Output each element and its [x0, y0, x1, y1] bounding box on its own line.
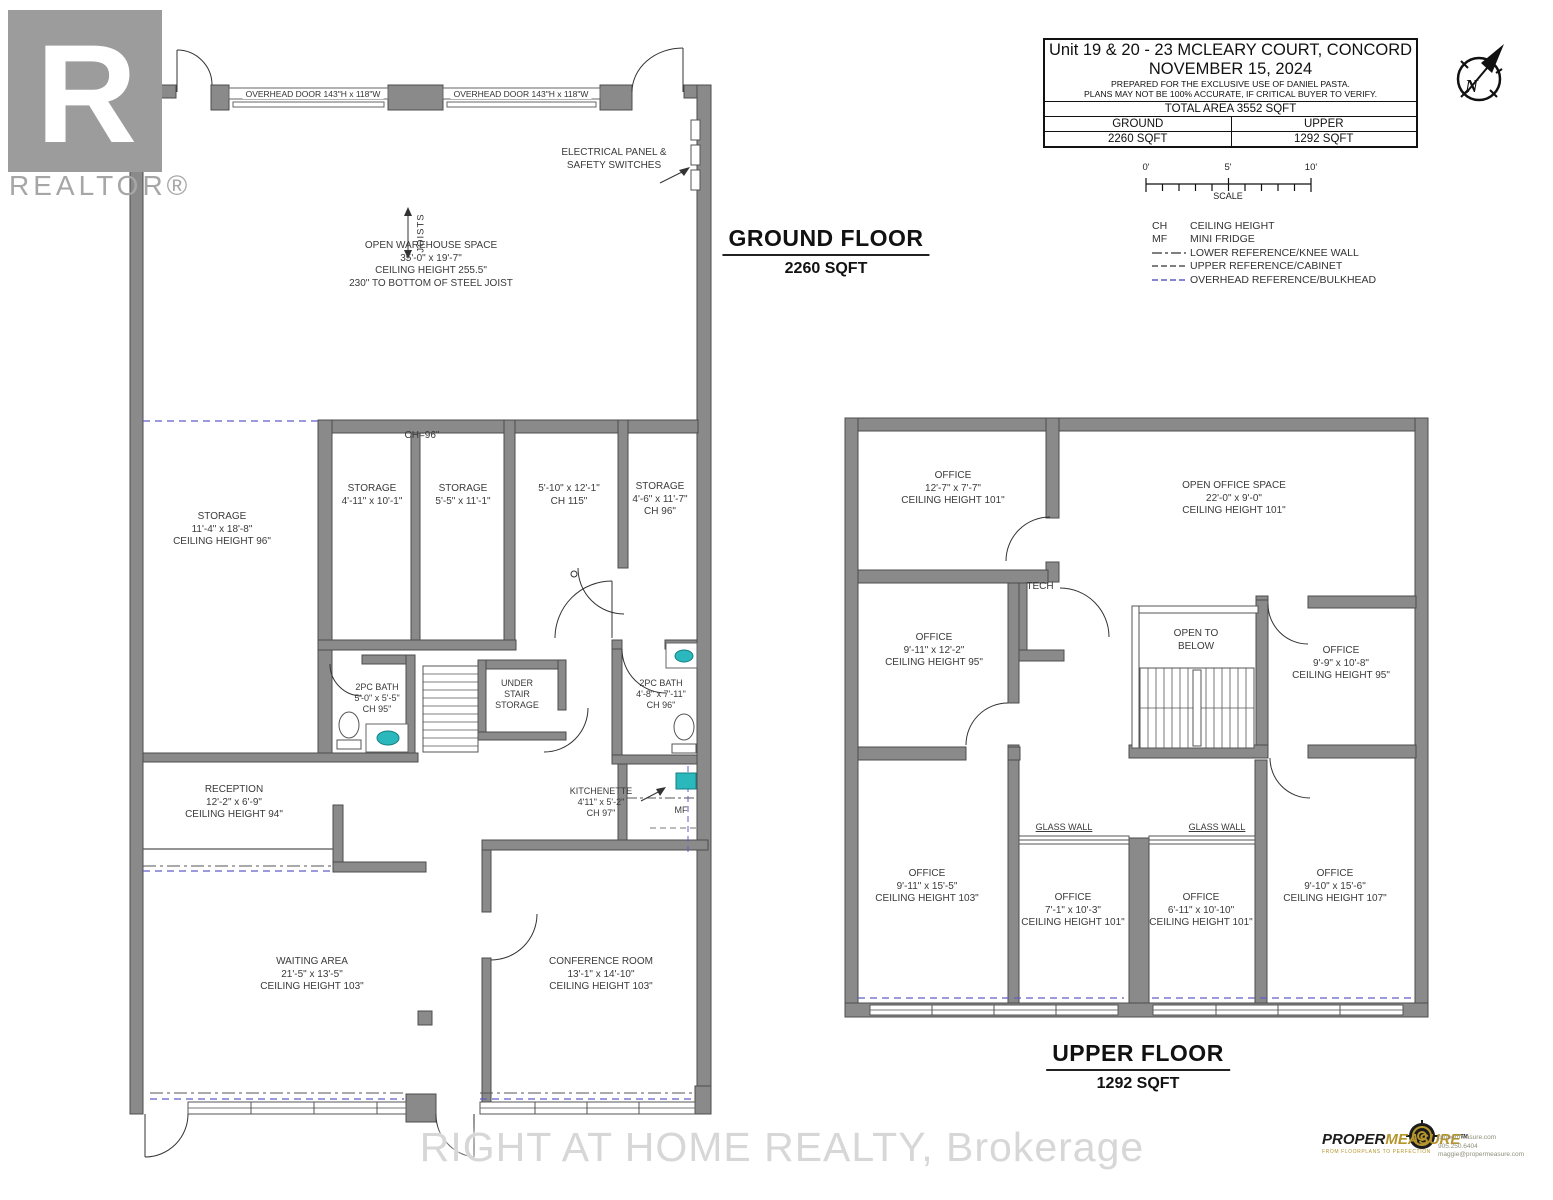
ground-windows [188, 1102, 695, 1114]
legend: CH CEILING HEIGHT MF MINI FRIDGE LOWER R… [1152, 219, 1376, 287]
room-label-conference: CONFERENCE ROOM 13'-1" x 14'-10" CEILING… [549, 956, 653, 994]
room-dims: 4'-6" x 11'-7" [632, 494, 687, 507]
room-name: STORAGE [173, 511, 271, 524]
room-label-office-c: OFFICE 9'-9" x 10'-8" CEILING HEIGHT 95" [1292, 645, 1390, 683]
title-prepared: PREPARED FOR THE EXCLUSIVE USE OF DANIEL… [1045, 79, 1416, 89]
scale-five: 5' [1224, 162, 1231, 173]
pm-brand-proper: PROPER [1322, 1131, 1385, 1148]
pm-phone: 905.250.6404 [1438, 1143, 1524, 1152]
title-disclaimer: PLANS MAY NOT BE 100% ACCURATE, IF CRITI… [1045, 89, 1416, 99]
room-name: OFFICE [1292, 645, 1390, 658]
legend-ch-abbr: CH [1152, 220, 1190, 232]
room-label-waiting: WAITING AREA 21'-5" x 13'-5" CEILING HEI… [260, 956, 363, 994]
scale-ten: 10' [1305, 162, 1317, 173]
room-name2: STAIR [495, 689, 539, 700]
room-name: WAITING AREA [260, 956, 363, 969]
room-dims: 5'-5" x 11'-1" [435, 496, 490, 509]
room-name: CONFERENCE ROOM [549, 956, 653, 969]
room-dims: 21'-5" x 13'-5" [260, 969, 363, 982]
room-ch: CH 96" [636, 700, 686, 711]
room-name: KITCHENETTE [570, 786, 633, 797]
realtor-wordmark: REALTOR® [9, 170, 191, 202]
room-dims: 9'-11" x 12'-2" [885, 645, 983, 658]
room-label-office-g: OFFICE 9'-10" x 15'-6" CEILING HEIGHT 10… [1283, 868, 1386, 906]
glass-wall-1-label: GLASS WALL [1036, 822, 1093, 833]
room-name3: STORAGE [495, 700, 539, 711]
room-label-bath2: 2PC BATH 4'-8" x 7'-11" CH 96" [636, 678, 686, 711]
compass-n-label: N [1464, 76, 1479, 96]
title-address: Unit 19 & 20 - 23 MCLEARY COURT, CONCORD [1045, 40, 1416, 60]
room-label-storage-c: STORAGE 4'-6" x 11'-7" CH 96" [632, 481, 687, 519]
sink-icon [666, 643, 697, 668]
compass-icon: N [1458, 44, 1504, 100]
kitchen-sink-icon [676, 773, 696, 789]
room-dims: 11'-4" x 18'-8" [173, 524, 271, 537]
upper-floor-title: UPPER FLOOR [1046, 1040, 1230, 1071]
room-dims: 13'-1" x 14'-10" [549, 969, 653, 982]
pm-website: propermeasure.com [1438, 1134, 1524, 1143]
dashed-line-icon [1152, 262, 1190, 270]
room-name: OFFICE [885, 632, 983, 645]
room-ch: CEILING HEIGHT 101" [901, 495, 1004, 508]
room-ch: CEILING HEIGHT 101" [1182, 505, 1286, 518]
overhead-door-2-label: OVERHEAD DOOR 143"H x 118"W [451, 89, 592, 99]
room-label-reception: RECEPTION 12'-2" x 6'-9" CEILING HEIGHT … [185, 784, 283, 822]
room-dims: 9'-11" x 15'-5" [875, 881, 978, 894]
room-name: OPEN TO [1174, 628, 1219, 641]
svg-text:R: R [36, 15, 137, 172]
room-name: OFFICE [1149, 892, 1252, 905]
room-dims: 7'-1" x 10'-3" [1021, 905, 1124, 918]
room-ch: CH 96" [632, 506, 687, 519]
brokerage-watermark: RIGHT AT HOME REALTY, Brokerage [420, 1124, 1144, 1171]
upper-floor-area: 1292 SQFT [1046, 1075, 1230, 1093]
legend-ch-label: CEILING HEIGHT [1190, 220, 1275, 232]
propermeasure-contact: propermeasure.com 905.250.6404 maggie@pr… [1438, 1134, 1524, 1160]
upper-floor-heading: UPPER FLOOR 1292 SQFT [1046, 1040, 1230, 1093]
ground-floor-heading: GROUND FLOOR 2260 SQFT [722, 225, 929, 278]
room-ch: CEILING HEIGHT 103" [875, 893, 978, 906]
electrical-label: ELECTRICAL PANEL & SAFETY SWITCHES [561, 147, 666, 172]
room-dims: 22'-0" x 9'-0" [1182, 493, 1286, 506]
title-date: NOVEMBER 15, 2024 [1045, 60, 1416, 79]
scale-label: SCALE [1211, 191, 1245, 201]
legend-mf-abbr: MF [1152, 233, 1190, 245]
room-name: 2PC BATH [354, 682, 399, 693]
glass-wall-2-label: GLASS WALL [1189, 822, 1246, 833]
room-label-office-b: OFFICE 9'-11" x 12'-2" CEILING HEIGHT 95… [885, 632, 983, 670]
plan-drawing: N [0, 0, 1553, 1200]
kitchenette-arrow-icon [641, 787, 666, 801]
room-name: OPEN WAREHOUSE SPACE [349, 240, 513, 253]
legend-mf-label: MINI FRIDGE [1190, 233, 1255, 245]
room-ch: CEILING HEIGHT 103" [549, 981, 653, 994]
room-label-storage-big: STORAGE 11'-4" x 18'-8" CEILING HEIGHT 9… [173, 511, 271, 549]
room-dims: 12'-7" x 7'-7" [901, 483, 1004, 496]
dash-dot-line-icon [1152, 249, 1190, 257]
sink-icon [366, 724, 408, 752]
room-name2: BELOW [1174, 641, 1219, 654]
toilet-icon [337, 712, 361, 749]
room-label-office-e: OFFICE 7'-1" x 10'-3" CEILING HEIGHT 101… [1021, 892, 1124, 930]
room-label-tech: TECH [1026, 581, 1053, 594]
room-note: 230" TO BOTTOM OF STEEL JOIST [349, 278, 513, 291]
room-ch: CEILING HEIGHT 255.5" [349, 265, 513, 278]
ground-stairs [423, 666, 478, 752]
room-label-warehouse: OPEN WAREHOUSE SPACE 35'-0" x 19'-7" CEI… [349, 240, 513, 290]
room-dims: 4'-8" x 7'-11" [636, 689, 686, 700]
room-ch: CH 115" [538, 496, 600, 509]
legend-knee-wall: LOWER REFERENCE/KNEE WALL [1152, 246, 1376, 260]
room-ch: CH 97" [570, 808, 633, 819]
room-label-kitchenette: KITCHENETTE 4'11" x 5'-2" CH 97" [570, 786, 633, 819]
room-ch: CEILING HEIGHT 103" [260, 981, 363, 994]
room-ch: CEILING HEIGHT 95" [885, 657, 983, 670]
room-name: OFFICE [875, 868, 978, 881]
title-ground-header: GROUND [1045, 117, 1231, 131]
room-label-office-d: OFFICE 9'-11" x 15'-5" CEILING HEIGHT 10… [875, 868, 978, 906]
legend-bulkhead: OVERHEAD REFERENCE/BULKHEAD [1152, 273, 1376, 287]
overhead-door-1-label: OVERHEAD DOOR 143"H x 118"W [243, 89, 384, 99]
room-label-open-office: OPEN OFFICE SPACE 22'-0" x 9'-0" CEILING… [1182, 480, 1286, 518]
room-label-bath1: 2PC BATH 5'-0" x 5'-5" CH 95" [354, 682, 399, 715]
realtor-r-icon: R [0, 0, 175, 180]
room-dims: 5'-10" x 12'-1" [538, 483, 600, 496]
room-label-storage-b: STORAGE 5'-5" x 11'-1" [435, 483, 490, 508]
room-label-understair: UNDER STAIR STORAGE [495, 678, 539, 711]
room-dims: 12'-2" x 6'-9" [185, 797, 283, 810]
pm-email: maggie@propermeasure.com [1438, 1151, 1524, 1160]
title-ground-sqft: 2260 SQFT [1045, 131, 1231, 146]
room-name: UNDER [495, 678, 539, 689]
room-name: OFFICE [901, 470, 1004, 483]
legend-cabinet-label: UPPER REFERENCE/CABINET [1190, 260, 1342, 272]
title-upper-header: UPPER [1231, 117, 1417, 131]
legend-mf: MF MINI FRIDGE [1152, 233, 1376, 247]
electrical-line1: ELECTRICAL PANEL & [561, 147, 666, 160]
room-label-storage-a: STORAGE 4'-11" x 10'-1" [342, 483, 403, 508]
room-dims: 9'-9" x 10'-8" [1292, 658, 1390, 671]
room-name: OFFICE [1283, 868, 1386, 881]
room-dims: 5'-0" x 5'-5" [354, 693, 399, 704]
title-block: Unit 19 & 20 - 23 MCLEARY COURT, CONCORD… [1043, 38, 1418, 148]
legend-bulkhead-label: OVERHEAD REFERENCE/BULKHEAD [1190, 274, 1376, 286]
room-dims: 4'11" x 5'-2" [570, 797, 633, 808]
room-dims: 35'-0" x 19'-7" [349, 253, 513, 266]
title-total-area: TOTAL AREA 3552 SQFT [1045, 101, 1416, 116]
scale-bar [1146, 178, 1311, 192]
room-dims: 6'-11" x 10'-10" [1149, 905, 1252, 918]
room-name: OFFICE [1021, 892, 1124, 905]
room-dims: 4'-11" x 10'-1" [342, 496, 403, 509]
room-name: 2PC BATH [636, 678, 686, 689]
electrical-panel-icon [691, 120, 700, 190]
scale-zero: 0' [1142, 162, 1149, 173]
room-ch: CEILING HEIGHT 101" [1021, 917, 1124, 930]
room-label-office-f: OFFICE 6'-11" x 10'-10" CEILING HEIGHT 1… [1149, 892, 1252, 930]
room-dims: 9'-10" x 15'-6" [1283, 881, 1386, 894]
mf-label: MF [675, 805, 688, 816]
floor-plan-sheet: N R REALTOR® Unit 19 & 20 - 23 MCLEARY C… [0, 0, 1553, 1200]
room-ch: CEILING HEIGHT 95" [1292, 670, 1390, 683]
room-name: STORAGE [632, 481, 687, 494]
room-name: OPEN OFFICE SPACE [1182, 480, 1286, 493]
electrical-line2: SAFETY SWITCHES [561, 160, 666, 173]
title-upper-sqft: 1292 SQFT [1231, 131, 1417, 146]
room-ch: CH 95" [354, 704, 399, 715]
ground-floor-area: 2260 SQFT [722, 260, 929, 278]
legend-ch: CH CEILING HEIGHT [1152, 219, 1376, 233]
room-label-open-to-below: OPEN TO BELOW [1174, 628, 1219, 653]
ground-floor-title: GROUND FLOOR [722, 225, 929, 256]
room-name: STORAGE [342, 483, 403, 496]
room-name: RECEPTION [185, 784, 283, 797]
room-label-hall: 5'-10" x 12'-1" CH 115" [538, 483, 600, 508]
room-name: STORAGE [435, 483, 490, 496]
ch96-label: CH=96" [405, 430, 440, 443]
legend-cabinet: UPPER REFERENCE/CABINET [1152, 260, 1376, 274]
room-ch: CEILING HEIGHT 107" [1283, 893, 1386, 906]
realtor-watermark: R REALTOR® [0, 0, 175, 185]
room-ch: CEILING HEIGHT 101" [1149, 917, 1252, 930]
room-ch: CEILING HEIGHT 94" [185, 809, 283, 822]
legend-knee-label: LOWER REFERENCE/KNEE WALL [1190, 247, 1359, 259]
toilet-icon [672, 714, 696, 753]
upper-floor-plan [845, 418, 1428, 1017]
room-ch: CEILING HEIGHT 96" [173, 536, 271, 549]
blue-dashed-line-icon [1152, 276, 1190, 284]
room-label-office-a: OFFICE 12'-7" x 7'-7" CEILING HEIGHT 101… [901, 470, 1004, 508]
